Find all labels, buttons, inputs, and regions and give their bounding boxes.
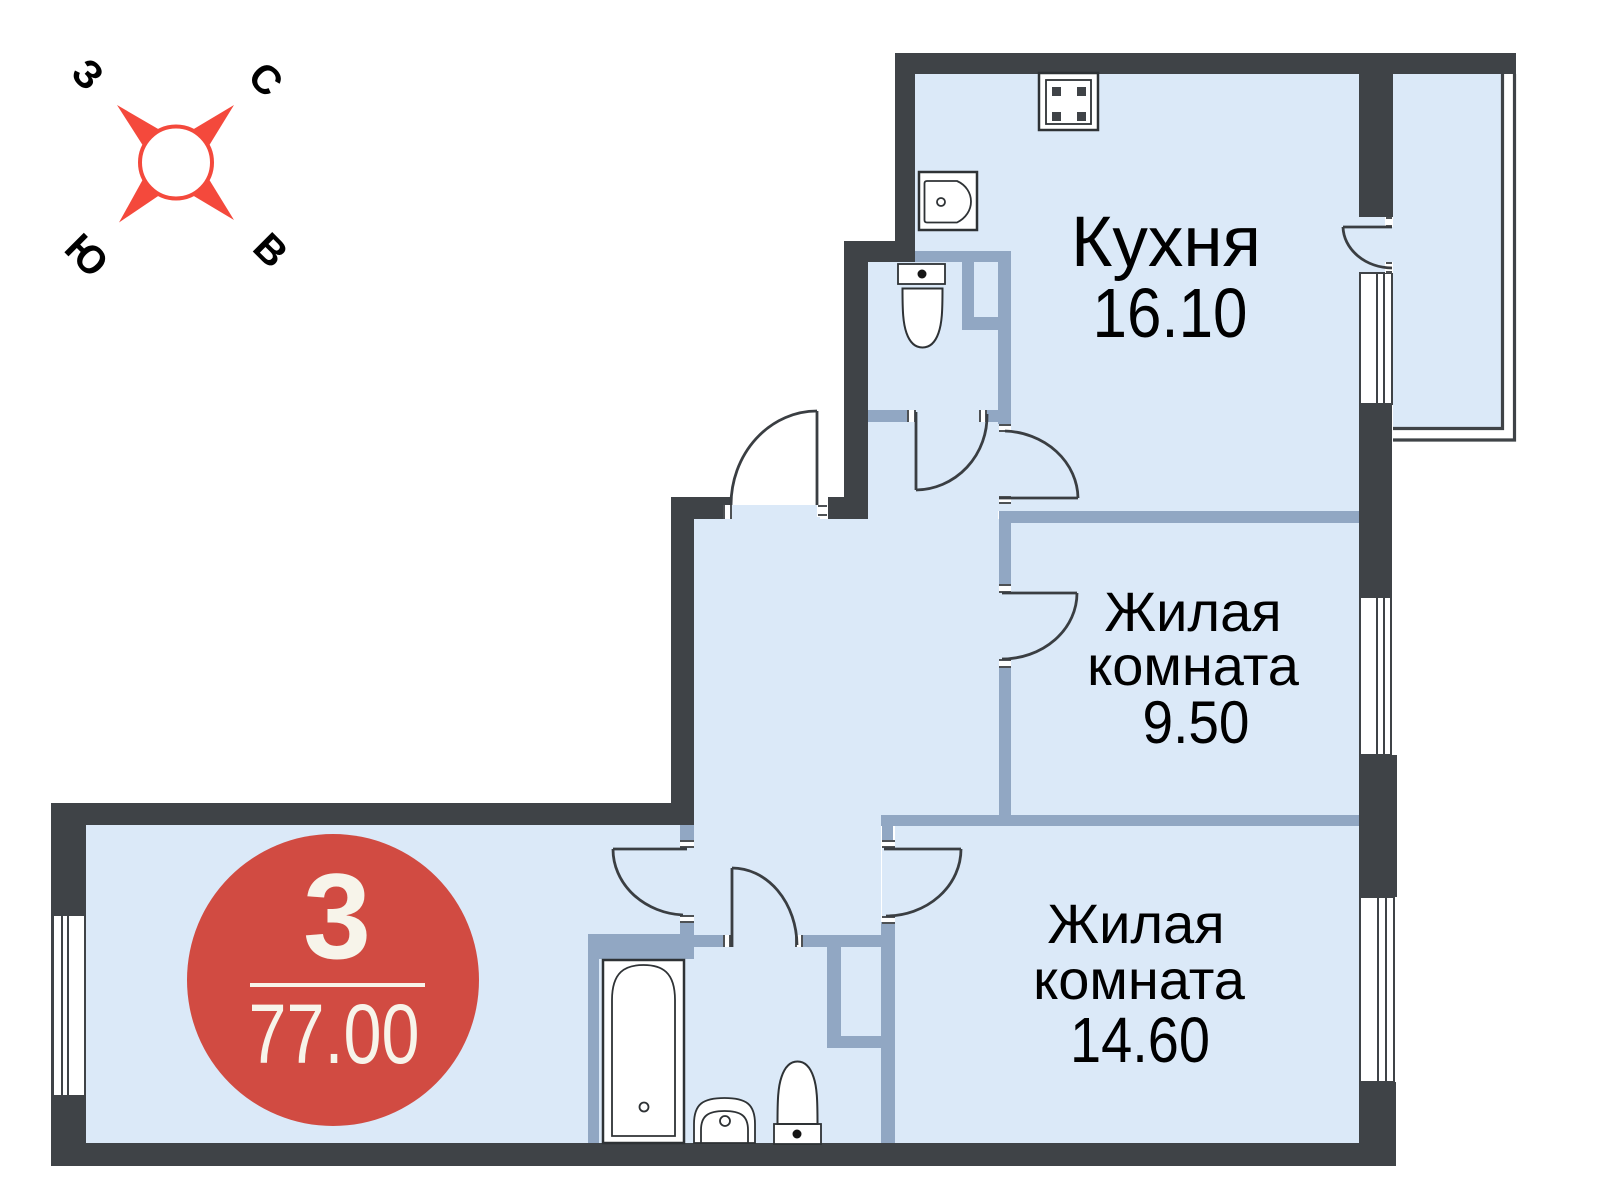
svg-text:77.00: 77.00 — [249, 987, 420, 1081]
svg-text:комната: комната — [1087, 634, 1300, 697]
svg-text:З: З — [63, 50, 112, 99]
svg-text:комната: комната — [1033, 948, 1246, 1011]
svg-text:В: В — [245, 225, 297, 277]
svg-text:14.60: 14.60 — [1070, 1004, 1210, 1076]
svg-text:9.50: 9.50 — [1143, 689, 1250, 756]
svg-text:Ю: Ю — [56, 226, 116, 286]
svg-text:3: 3 — [303, 848, 371, 984]
svg-text:Жилая: Жилая — [1047, 892, 1224, 955]
svg-text:Кухня: Кухня — [1071, 203, 1261, 282]
svg-text:16.10: 16.10 — [1093, 274, 1248, 352]
svg-text:С: С — [240, 54, 292, 106]
